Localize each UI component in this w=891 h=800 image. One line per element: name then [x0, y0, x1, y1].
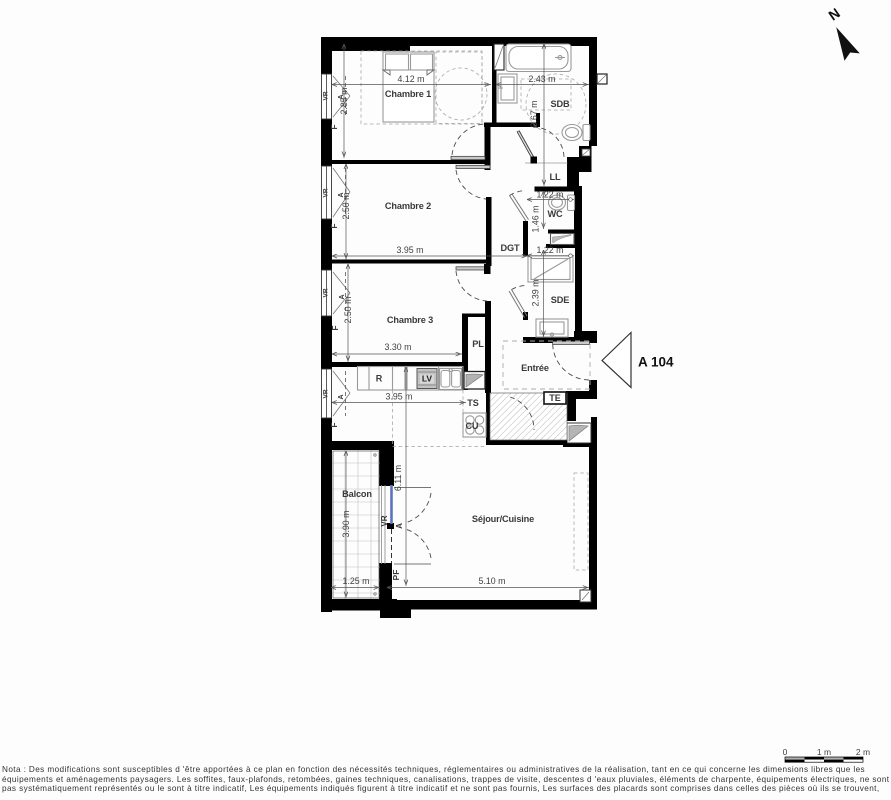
svg-text:Chambre 3: Chambre 3	[387, 315, 433, 325]
svg-text:F: F	[329, 422, 339, 427]
svg-text:VR: VR	[380, 515, 389, 526]
svg-text:Chambre 2: Chambre 2	[385, 201, 431, 211]
svg-text:F: F	[329, 124, 339, 129]
svg-text:LV: LV	[422, 374, 433, 384]
svg-text:F: F	[330, 325, 340, 330]
svg-text:SDE: SDE	[551, 295, 569, 305]
svg-text:1.22 m: 1.22 m	[537, 245, 564, 255]
svg-text:3.30 m: 3.30 m	[385, 342, 412, 352]
svg-text:PL: PL	[472, 339, 484, 349]
svg-text:2 m: 2 m	[856, 747, 870, 757]
svg-text:2.50 m: 2.50 m	[343, 297, 353, 324]
svg-text:WC: WC	[547, 209, 563, 219]
svg-text:1.46 m: 1.46 m	[531, 206, 541, 233]
svg-text:3.95 m: 3.95 m	[397, 245, 424, 255]
svg-text:6.11 m: 6.11 m	[393, 465, 403, 491]
svg-text:DGT: DGT	[501, 243, 520, 253]
svg-text:1.22 m: 1.22 m	[537, 190, 564, 200]
svg-text:R: R	[376, 374, 383, 384]
svg-text:Entrée: Entrée	[521, 363, 549, 373]
svg-text:TS: TS	[467, 398, 479, 408]
svg-text:3.95 m: 3.95 m	[386, 392, 413, 402]
svg-text:A: A	[339, 294, 346, 299]
svg-text:3.90 m: 3.90 m	[341, 511, 351, 538]
svg-text:5.10 m: 5.10 m	[479, 576, 506, 586]
svg-text:0: 0	[783, 747, 788, 757]
svg-text:3.67 m: 3.67 m	[529, 101, 539, 128]
svg-text:4.12 m: 4.12 m	[398, 74, 425, 84]
svg-text:A: A	[395, 523, 404, 529]
svg-text:2.85 m: 2.85 m	[339, 88, 349, 115]
svg-text:A: A	[338, 94, 345, 99]
svg-text:SDB: SDB	[551, 99, 570, 109]
svg-text:2.43 m: 2.43 m	[529, 74, 556, 84]
svg-text:TE: TE	[549, 393, 561, 403]
svg-text:A: A	[338, 192, 345, 197]
svg-text:PF: PF	[391, 570, 401, 581]
svg-text:1.25 m: 1.25 m	[343, 576, 370, 586]
svg-text:LL: LL	[550, 172, 561, 182]
svg-text:A: A	[338, 394, 345, 399]
svg-text:CU: CU	[466, 421, 479, 431]
svg-text:VR: VR	[323, 188, 330, 197]
svg-text:A 104: A 104	[638, 355, 674, 370]
svg-text:F: F	[329, 223, 339, 228]
svg-text:Balcon: Balcon	[342, 489, 372, 499]
svg-text:VR: VR	[323, 91, 330, 100]
svg-text:VR: VR	[323, 389, 330, 398]
svg-text:VR: VR	[323, 288, 330, 297]
svg-text:2.39 m: 2.39 m	[531, 280, 541, 307]
svg-text:Séjour/Cuisine: Séjour/Cuisine	[472, 514, 534, 524]
svg-text:Chambre 1: Chambre 1	[385, 89, 431, 99]
svg-text:1 m: 1 m	[817, 747, 831, 757]
